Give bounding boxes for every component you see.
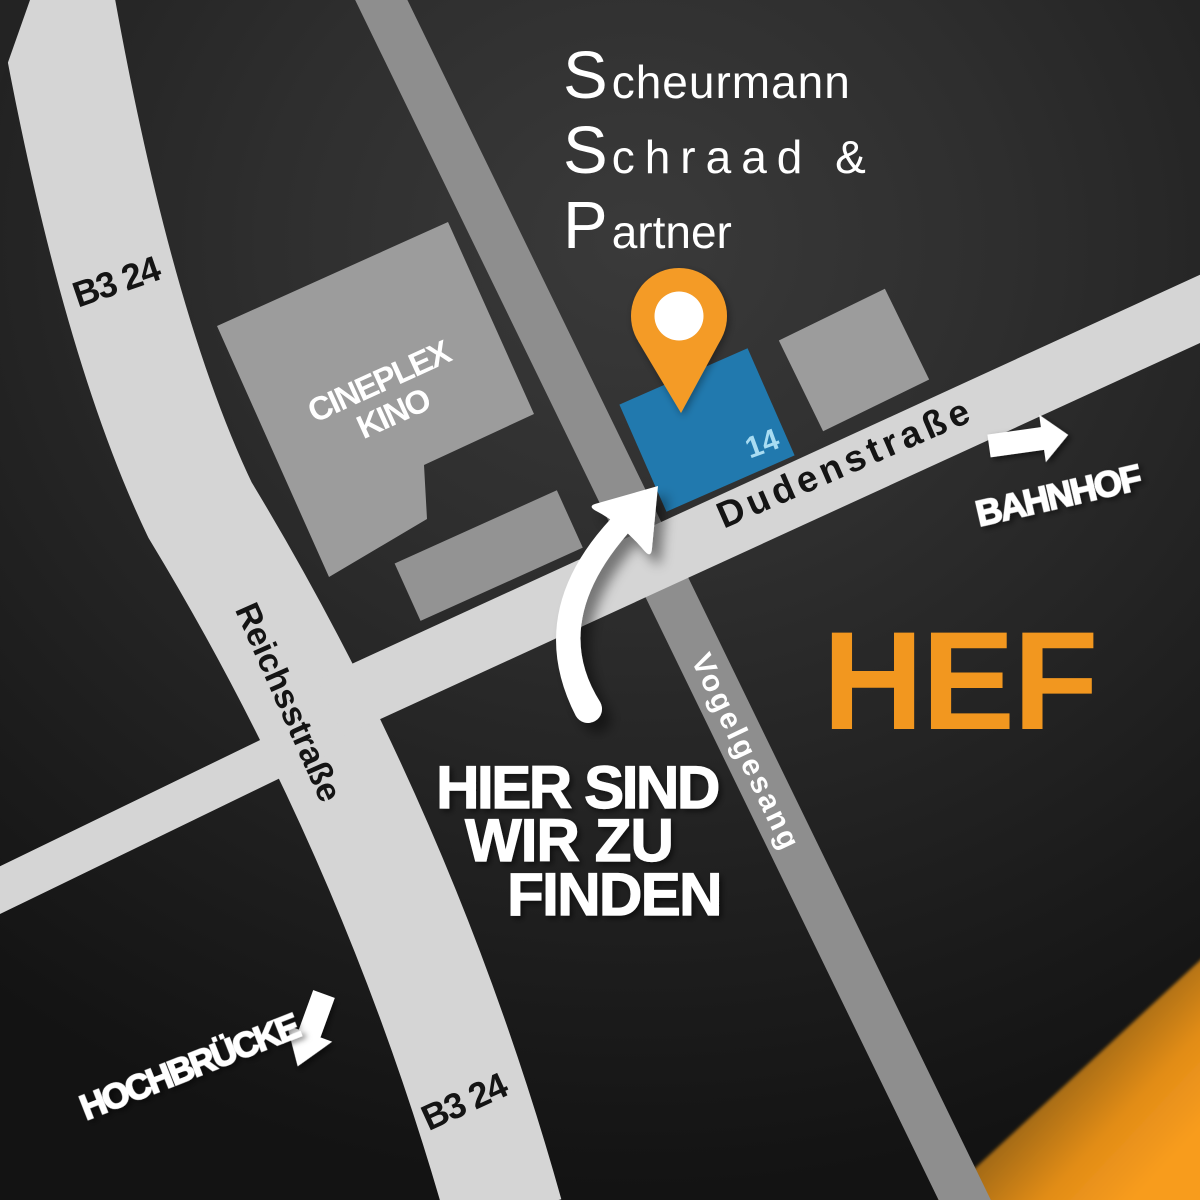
svg-text:BAHNHOF: BAHNHOF [972, 457, 1145, 535]
svg-text:HEF: HEF [823, 602, 1097, 759]
svg-text:Vogelgesang: Vogelgesang [684, 648, 806, 857]
svg-text:Scheurmann: Scheurmann [563, 38, 851, 113]
svg-text:Partner: Partner [563, 188, 732, 263]
svg-text:FINDEN: FINDEN [507, 861, 721, 928]
svg-text:Schraad &: Schraad & [563, 113, 876, 188]
svg-text:HOCHBRÜCKE: HOCHBRÜCKE [75, 1007, 305, 1128]
